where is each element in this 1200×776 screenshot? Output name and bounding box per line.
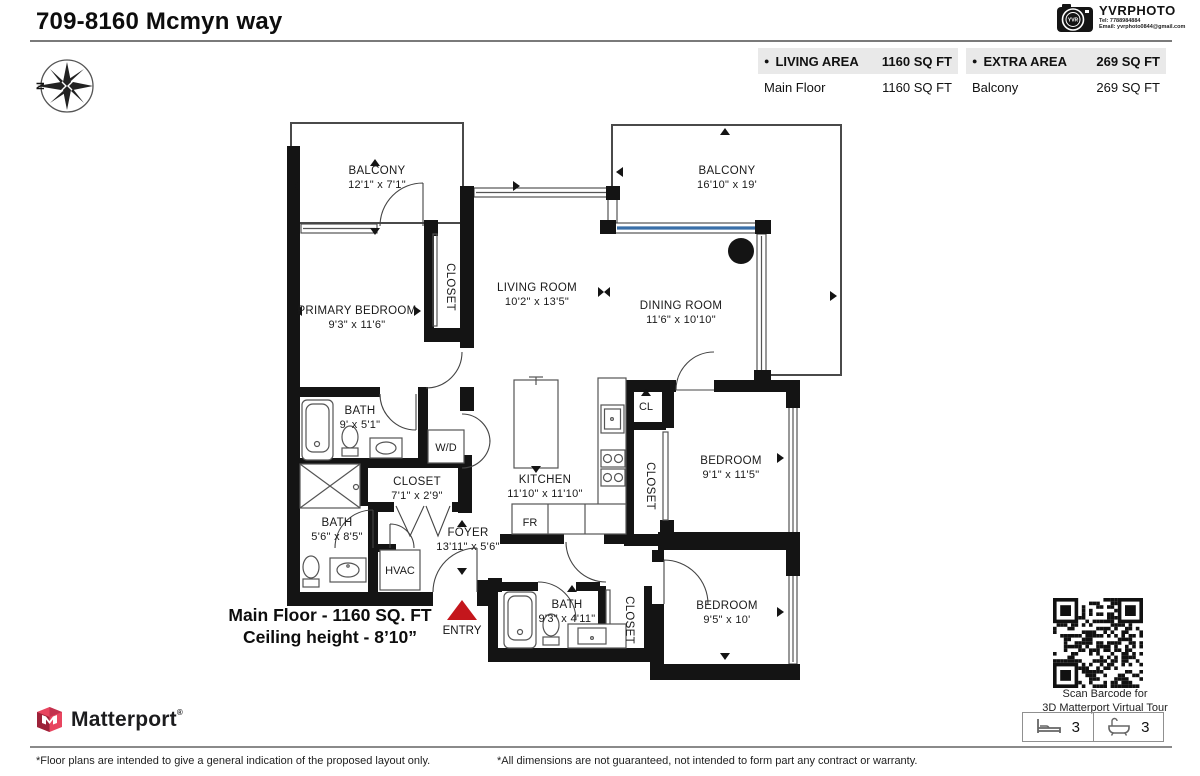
beds-stat: 3 <box>1023 713 1093 741</box>
qr-caption-line1: Scan Barcode for <box>1010 688 1200 702</box>
room-label-cl: CL <box>639 401 653 413</box>
room-dims-closet-hall: 7'1" x 2'9" <box>391 490 442 502</box>
stove-icon <box>601 450 625 467</box>
registered-mark: ® <box>177 708 183 717</box>
room-label-fr: FR <box>523 517 538 529</box>
room-label-closet-kitchen: CLOSET <box>644 462 656 510</box>
dining-table-dot <box>728 238 754 264</box>
floor-note: Main Floor - 1160 SQ. FT Ceiling height … <box>228 605 432 647</box>
room-label-bath2: BATH <box>321 517 352 529</box>
room-label-wd: W/D <box>435 442 456 454</box>
bath-icon <box>1107 717 1131 737</box>
room-dims-kitchen: 11'10" x 11'10" <box>507 488 582 500</box>
room-label-hvac: HVAC <box>385 565 415 577</box>
room-label-living-room: LIVING ROOM <box>497 282 577 294</box>
compass-icon: N <box>35 60 93 112</box>
floor-plan: N <box>0 0 1200 776</box>
room-dims-primary-bedroom: 9'3" x 11'6" <box>329 319 386 331</box>
room-label-bath1: BATH <box>344 405 375 417</box>
room-dims-balcony-tl: 12'1" x 7'1" <box>348 179 406 191</box>
sink-icon <box>330 558 366 582</box>
bed-bath-stats: 3 3 <box>1022 712 1164 742</box>
room-label-balcony-tr: BALCONY <box>698 165 755 177</box>
room-label-bath3: BATH <box>551 599 582 611</box>
room-label-primary-bedroom: PRIMARY BEDROOM <box>297 305 416 317</box>
room-dims-bath1: 9' x 5'1" <box>340 419 381 431</box>
bed-icon <box>1036 718 1062 736</box>
room-label-closet-hall: CLOSET <box>393 476 441 488</box>
room-label-dining-room: DINING ROOM <box>640 300 723 312</box>
footer-divider <box>30 746 1172 748</box>
matterport-icon <box>36 706 63 733</box>
toilet-icon <box>303 556 319 578</box>
room-dims-bath3: 9'3" x 4'11" <box>539 613 596 625</box>
entry-marker: ENTRY <box>443 600 482 637</box>
compass-north-label: N <box>35 82 47 90</box>
baths-stat: 3 <box>1093 713 1164 741</box>
qr-code <box>1053 598 1143 688</box>
floor-note-line1: Main Floor - 1160 SQ. FT <box>228 605 432 625</box>
footer-note-right: *All dimensions are not guaranteed, not … <box>497 755 917 767</box>
room-label-closet-primary: CLOSET <box>444 263 456 311</box>
matterport-wordmark: Matterport® <box>71 708 183 732</box>
room-label-kitchen: KITCHEN <box>519 474 572 486</box>
room-dims-bath2: 5'6" x 8'5" <box>311 531 362 543</box>
matterport-logo: Matterport® <box>36 706 183 733</box>
baths-count: 3 <box>1141 719 1149 736</box>
entry-label: ENTRY <box>443 625 482 637</box>
room-label-closet-bath3: CLOSET <box>623 596 635 644</box>
room-dims-living-room: 10'2" x 13'5" <box>505 296 569 308</box>
floor-note-line2: Ceiling height - 8’10” <box>243 627 417 647</box>
beds-count: 3 <box>1072 719 1080 736</box>
room-label-bedroom1: BEDROOM <box>700 455 762 467</box>
entry-arrow-icon <box>447 600 477 620</box>
room-dims-bedroom1: 9'1" x 11'5" <box>703 469 760 481</box>
sink-icon <box>370 438 402 458</box>
room-dims-dining-room: 11'6" x 10'10" <box>646 314 716 326</box>
room-label-bedroom2: BEDROOM <box>696 600 758 612</box>
room-dims-balcony-tr: 16'10" x 19' <box>697 179 757 191</box>
room-label-foyer: FOYER <box>447 527 488 539</box>
footer-note-left: *Floor plans are intended to give a gene… <box>36 755 430 767</box>
kitchen-fixtures <box>512 377 626 534</box>
room-dims-foyer: 13'11" x 5'6" <box>436 541 499 553</box>
room-dims-bedroom2: 9'5" x 10' <box>703 614 750 626</box>
room-label-balcony-tl: BALCONY <box>348 165 405 177</box>
